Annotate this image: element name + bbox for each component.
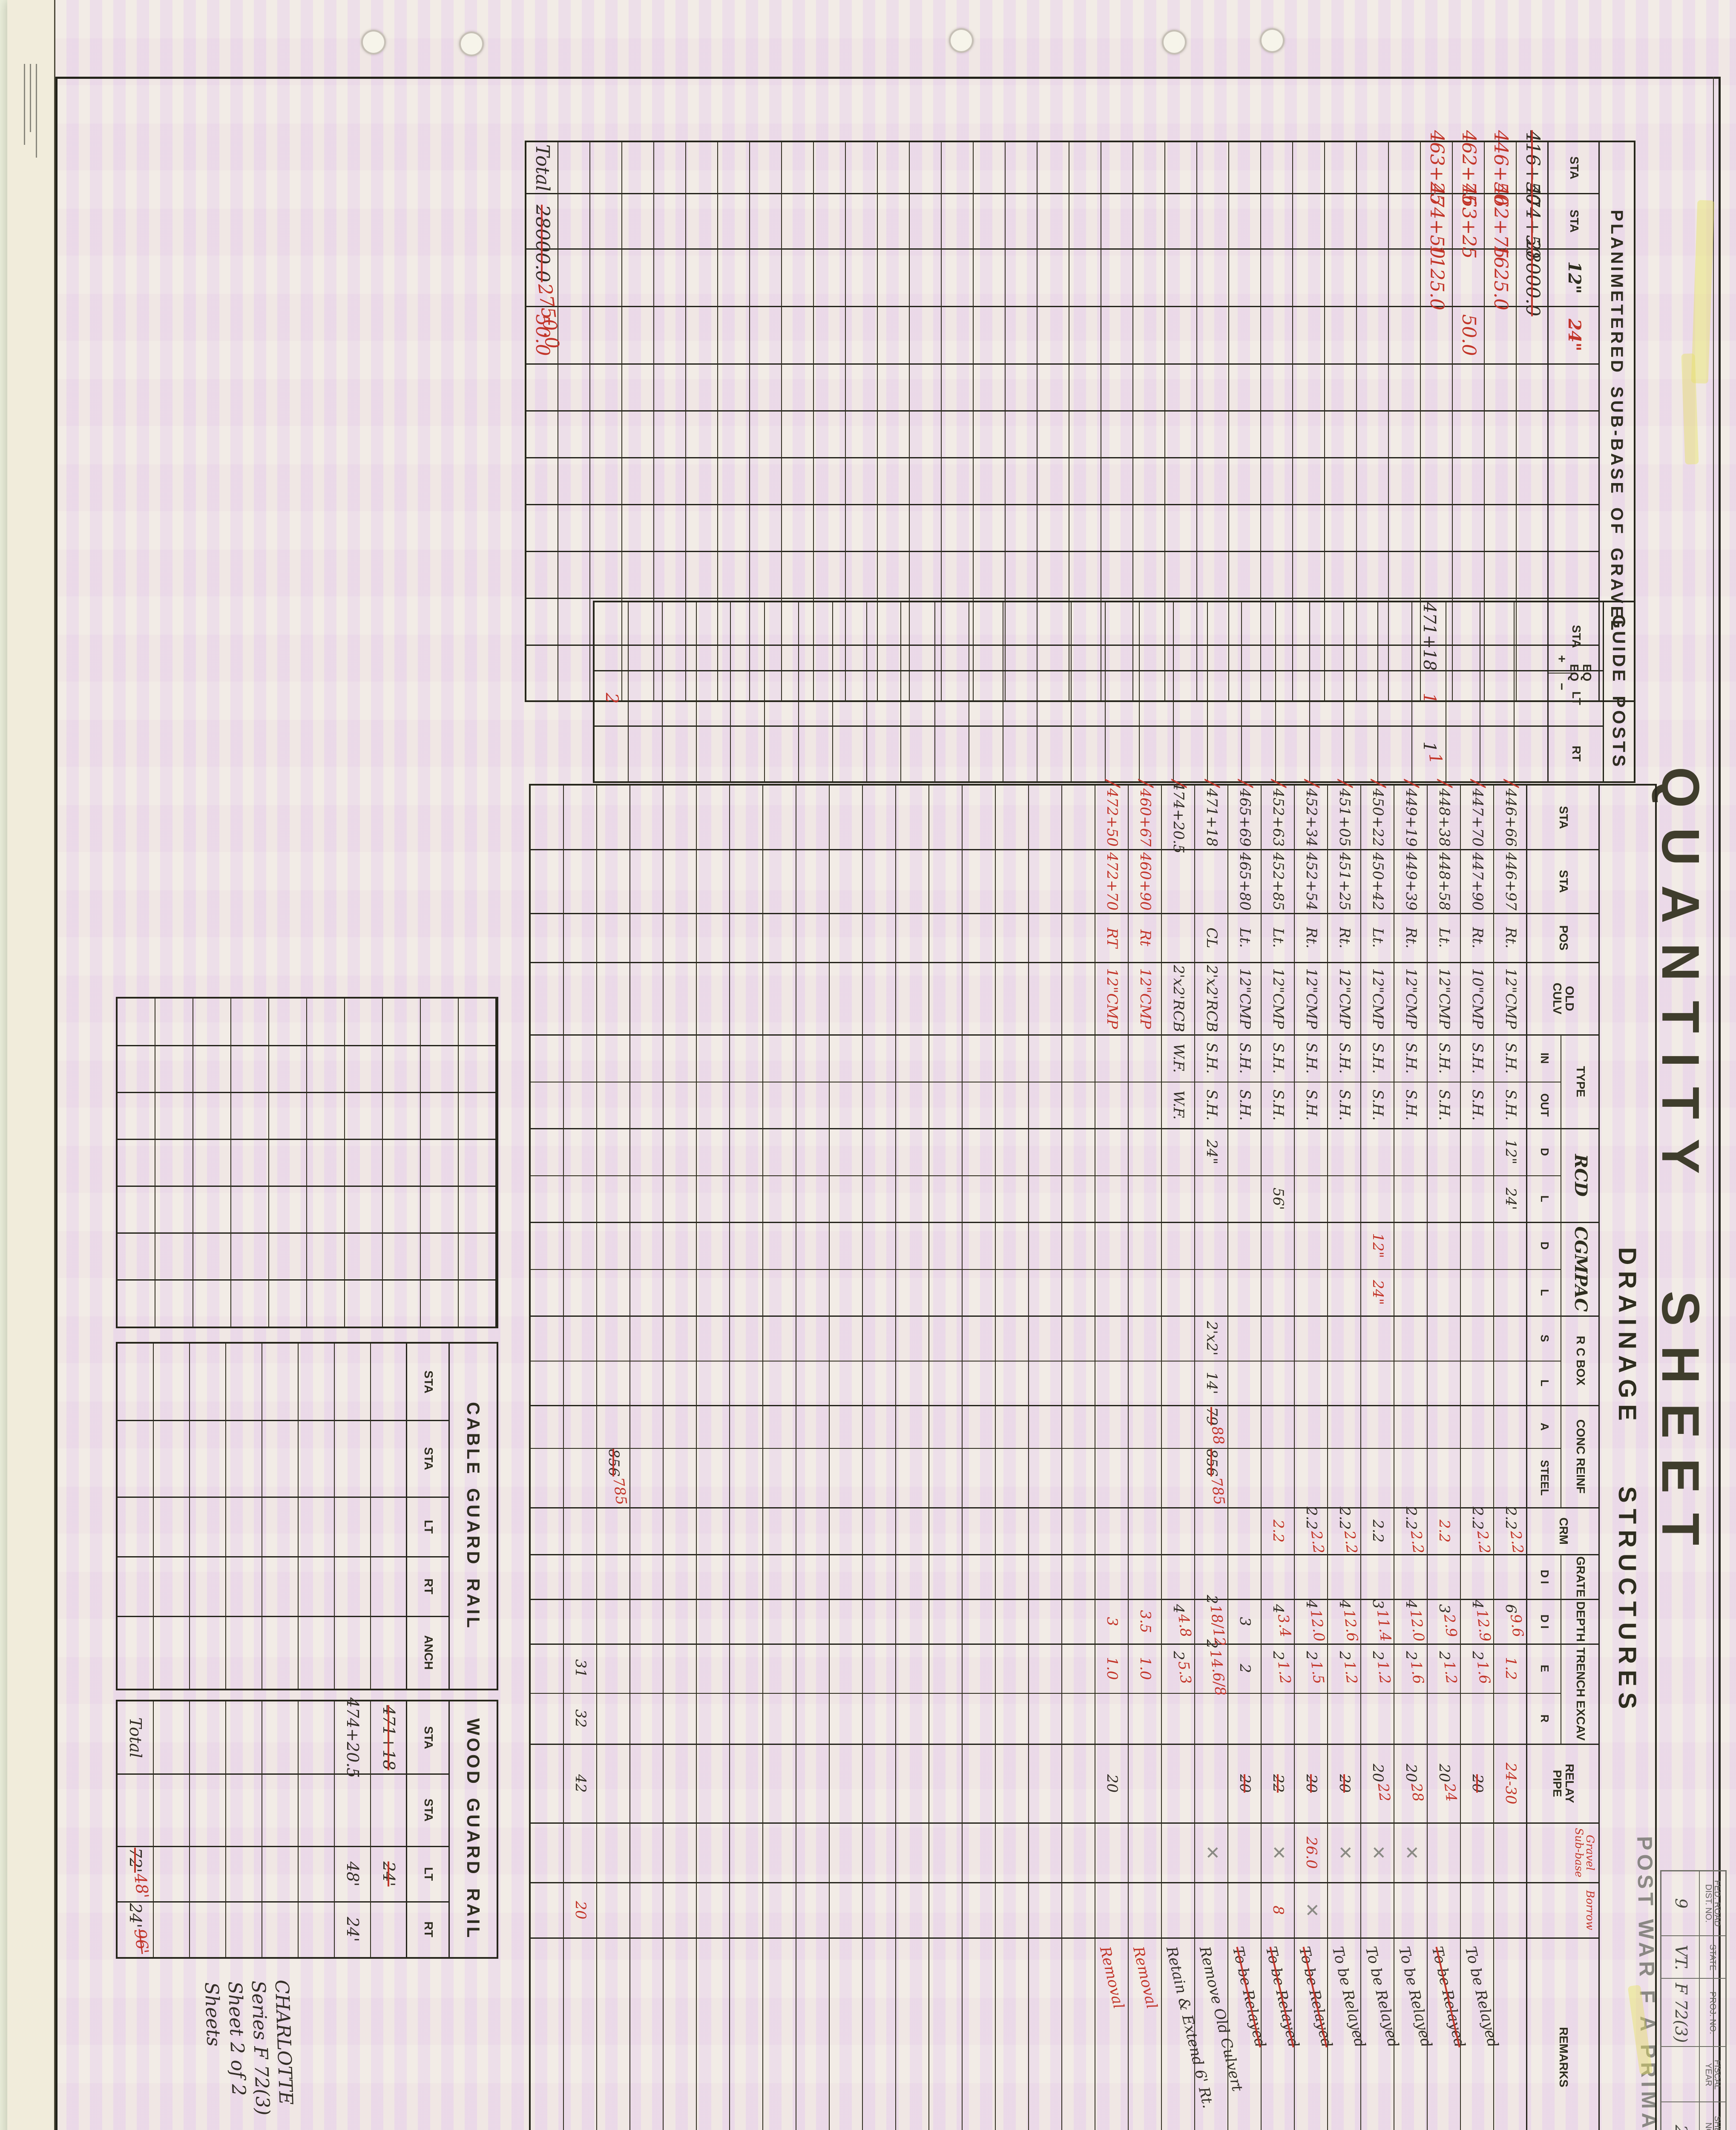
table-part xyxy=(118,1045,497,1046)
table-part xyxy=(696,602,697,781)
title-block-label: STATE xyxy=(1699,1935,1725,1979)
table-part xyxy=(118,1092,497,1093)
drainage-handwritten-cell: 460+90 xyxy=(1129,849,1162,913)
table-part xyxy=(995,786,996,2130)
drainage-handwritten-cell: 12"CMP xyxy=(1295,962,1328,1035)
drainage-handwritten-cell: S.H. xyxy=(1461,1035,1494,1082)
ink-black: 446+66 xyxy=(1502,789,1519,847)
sheet-border-inner-line xyxy=(1713,77,1714,2130)
ink-black: 12"CMP xyxy=(1369,968,1386,1029)
ink-red: 785 xyxy=(609,1477,630,1506)
drainage-handwritten-cell: 856785 xyxy=(597,1448,630,1508)
ink-red: 2.9 xyxy=(1440,1613,1460,1638)
table-part xyxy=(531,1269,1561,1270)
table-part xyxy=(382,999,383,1327)
drainage-handwritten-cell: 465+80 xyxy=(1228,849,1262,913)
ink-red: 26.0 xyxy=(1303,1836,1320,1869)
drainage-handwritten-cell: 448+38 xyxy=(1428,786,1461,849)
ink-black: 24" xyxy=(1203,1140,1220,1165)
ink-black: S.H. xyxy=(1203,1089,1220,1120)
binder-hole xyxy=(459,32,484,56)
ink-black: S.H. xyxy=(1303,1089,1320,1120)
table-part xyxy=(118,1279,497,1281)
table-part xyxy=(298,1701,299,1957)
title-block-label: PROJ. NO. xyxy=(1699,1978,1725,2047)
table-part xyxy=(495,999,497,1327)
drainage-handwritten-cell: 2.2 xyxy=(1262,1508,1295,1554)
drainage-handwritten-cell: 3.5 xyxy=(1129,1599,1162,1644)
ink-black: 465+69 xyxy=(1236,789,1253,847)
drainage-red-pencil-header: Gravel Sub-base xyxy=(1573,1823,1596,1882)
drainage-header: CGMPAC xyxy=(1561,1222,1600,1316)
table-part xyxy=(595,670,1604,671)
drainage-handwritten-cell: 474+20.5 xyxy=(1162,786,1195,849)
ink-black: Lt. xyxy=(1270,928,1287,948)
table-part xyxy=(895,786,896,2130)
table-part xyxy=(531,1937,1600,1939)
ink-black: 448+58 xyxy=(1436,852,1453,911)
drainage-handwritten-cell: 20 xyxy=(564,1882,597,1938)
ink-black: 2 xyxy=(1469,1651,1486,1661)
table-part xyxy=(595,725,1604,727)
ink-red: 50.0 xyxy=(532,314,553,356)
ink-red: 22 xyxy=(1374,1782,1394,1802)
ink-red: 12.6 xyxy=(1340,1609,1361,1643)
ink-black: S.H. xyxy=(1270,1089,1287,1120)
drainage-handwritten-cell: Lt. xyxy=(1228,913,1262,962)
wood_guard_rail-handwritten-cell: 48' xyxy=(335,1846,371,1902)
table-part xyxy=(189,1344,190,1689)
table-part xyxy=(1547,602,1549,781)
drainage-header: TYPE xyxy=(1561,1035,1600,1128)
ink-red: 4.8 xyxy=(1175,1613,1194,1638)
drainage-handwritten-cell: 20 xyxy=(1095,1744,1129,1823)
ink-black: S.H. xyxy=(1369,1089,1386,1120)
ink-black: Rt. xyxy=(1403,927,1420,948)
drainage-red-pencil-header: Borrow xyxy=(1584,1882,1595,1938)
table-part xyxy=(729,786,730,2130)
ink-black: 447+90 xyxy=(1469,852,1486,911)
ink-black: 471+18 xyxy=(1203,789,1220,847)
drainage-header: REMARKS xyxy=(1527,1938,1600,2130)
table-part xyxy=(862,786,863,2130)
ink-red: 1125.0 xyxy=(1426,245,1448,311)
drainage-handwritten-cell: 21.2 xyxy=(1328,1644,1361,1693)
ink-black: 449+19 xyxy=(1403,789,1420,847)
ink-red: Removal xyxy=(1096,1945,1127,2010)
drainage-handwritten-cell: 856785 xyxy=(1195,1448,1228,1508)
ink-black: 2 xyxy=(1203,1639,1220,1649)
pencil-x-mark: ✕ xyxy=(1268,1845,1289,1860)
ink-red: 12"CMP xyxy=(1104,968,1121,1029)
ink-black: 452+63 xyxy=(1270,789,1287,847)
drainage-handwritten-cell: Lt. xyxy=(1361,913,1394,962)
title-block-value xyxy=(1661,2046,1700,2102)
red-check-tick: ╱ xyxy=(1304,780,1319,787)
drainage-handwritten-cell: S.H. xyxy=(1428,1035,1461,1082)
drainage-subheader: D xyxy=(1527,1128,1561,1175)
table-part xyxy=(531,1361,1561,1361)
pencil-x-mark: ✕ xyxy=(1368,1845,1389,1860)
binder-hole xyxy=(1260,28,1285,53)
table-part xyxy=(796,786,796,2130)
table-part xyxy=(526,457,1600,458)
red-check-tick: ╱ xyxy=(1337,780,1352,787)
drainage-handwritten-cell: S.H. xyxy=(1494,1035,1527,1082)
drainage-handwritten-cell: 42 xyxy=(564,1744,597,1823)
ink-red: 50.0 xyxy=(1458,314,1480,356)
drainage-handwritten-cell: 12"CMP xyxy=(1428,962,1461,1035)
drainage-handwritten-cell: Rt. xyxy=(1295,913,1328,962)
guide_posts-header: RT xyxy=(1549,726,1604,781)
drainage-handwritten-cell: 472+50 xyxy=(1095,786,1129,849)
ink-black: 20 xyxy=(1403,1764,1420,1782)
red-check-tick: ╱ xyxy=(1503,780,1518,787)
table-part xyxy=(832,602,833,781)
title-block-label: SHEET NO. xyxy=(1699,2101,1725,2130)
drainage-handwritten-cell: 447+90 xyxy=(1461,849,1494,913)
ink-red: 28 xyxy=(1408,1782,1427,1802)
table-part xyxy=(526,504,1600,505)
wood_guard_rail-handwritten-cell: 471+18 xyxy=(371,1701,407,1774)
guide_posts-handwritten-cell: 2 xyxy=(595,671,629,726)
cable_guard_rail-header: STA xyxy=(407,1420,450,1497)
drainage-handwritten-cell: S.H. xyxy=(1295,1082,1328,1128)
drainage-header: GRATE xyxy=(1561,1554,1600,1599)
drainage-subheader: D I xyxy=(1527,1554,1561,1599)
ink-red: 460+67 xyxy=(1137,789,1154,847)
ink-red: 24 xyxy=(1441,1782,1460,1802)
drainage-handwritten-cell: 2.22.2 xyxy=(1461,1508,1494,1554)
drainage-subheader: STEEL xyxy=(1527,1448,1561,1508)
ink-black: 22 xyxy=(1270,1774,1287,1793)
table-part xyxy=(1028,786,1029,2130)
ink-black: 2 xyxy=(1270,1651,1287,1661)
drainage-handwritten-cell: W.F. xyxy=(1162,1035,1195,1082)
ink-black: 2.2 xyxy=(1336,1507,1353,1530)
ink-red: 2.2 xyxy=(1341,1530,1360,1555)
table-part xyxy=(1275,602,1276,781)
table-part xyxy=(1309,602,1310,781)
ink-black: 32 xyxy=(572,1709,589,1727)
table-part xyxy=(662,602,663,781)
ink-black: 24' xyxy=(1502,1188,1519,1210)
ink-black: S.H. xyxy=(1469,1089,1486,1120)
title-block-label: FISCAL YEAR xyxy=(1699,2046,1725,2102)
ink-red: 14.6/8 xyxy=(1207,1649,1229,1697)
ink-black: Lt. xyxy=(1436,928,1453,948)
ink-black: 6 xyxy=(1502,1604,1519,1614)
table-part xyxy=(531,1882,1600,1883)
table-part xyxy=(526,551,1600,552)
table-part xyxy=(1561,1554,1561,1599)
ink-black: 2'x2'RCB xyxy=(1170,965,1187,1032)
drainage-handwritten-cell: 22 xyxy=(1262,1744,1295,1823)
drainage-handwritten-cell: 218/12 xyxy=(1195,1599,1228,1644)
cable_guard_rail-header: RT xyxy=(407,1557,450,1616)
ink-black: 2 xyxy=(1236,1664,1253,1673)
project-note: CHARLOTTE Series F 72(3) Sheet 2 of 2 Sh… xyxy=(200,1979,300,2130)
drainage-handwritten-cell: 12"CMP xyxy=(1228,962,1262,1035)
ink-black: 4 xyxy=(1469,1600,1486,1609)
ink-black: 451+05 xyxy=(1336,789,1353,847)
drainage-subheader: IN xyxy=(1527,1035,1561,1082)
table-part xyxy=(531,1222,1600,1223)
ink-red: 11.4 xyxy=(1374,1609,1394,1643)
drainage-handwritten-cell: 3 xyxy=(1228,1599,1262,1644)
drainage-handwritten-cell: 2.22.2 xyxy=(1328,1508,1361,1554)
drainage-header: CRM xyxy=(1527,1508,1600,1554)
drainage-subheader: D xyxy=(1527,1222,1561,1269)
red-check-tick: ╱ xyxy=(1271,780,1286,787)
table-part xyxy=(153,1344,154,1689)
drainage-handwritten-cell: S.H. xyxy=(1428,1082,1461,1128)
table-part xyxy=(193,999,193,1327)
guide_posts-header: LT xyxy=(1549,671,1604,726)
drainage-handwritten-cell: 12"CMP xyxy=(1095,962,1129,1035)
ink-red: 5.3 xyxy=(1175,1660,1194,1685)
drainage-handwritten-cell: 472+70 xyxy=(1095,849,1129,913)
table-part xyxy=(730,602,731,781)
drainage-handwritten-cell: 21.2 xyxy=(1262,1644,1295,1693)
ink-red: 1 xyxy=(1420,693,1439,703)
ink-black: W.F. xyxy=(1170,1091,1187,1120)
drainage-handwritten-cell: 214.6/8 xyxy=(1195,1644,1228,1693)
planimetered-handwritten-cell: Total xyxy=(526,142,558,193)
ink-red: 1.5 xyxy=(1308,1660,1327,1685)
title-block: FED. ROAD DIST. NO.9STATEVT.PROJ. NO.F 7… xyxy=(1660,1870,1727,2130)
planimetered-header: STA xyxy=(1549,193,1600,249)
table-part xyxy=(420,999,421,1327)
table-part xyxy=(962,786,963,2130)
drainage-handwritten-cell: S.H. xyxy=(1262,1082,1295,1128)
ink-black: 446+97 xyxy=(1502,852,1519,911)
drainage-handwritten-cell: 12"CMP xyxy=(1262,962,1295,1035)
drainage-header: CONC REINF xyxy=(1561,1405,1600,1508)
table-part xyxy=(118,1497,450,1498)
planimetered-handwritten-cell: 28000.02750.0 xyxy=(526,249,558,306)
drainage-handwritten-cell: 21.6 xyxy=(1461,1644,1494,1693)
drainage-handwritten-cell: 21.2 xyxy=(1428,1644,1461,1693)
title-block-value: 2 xyxy=(1661,2101,1700,2130)
ink-black: S.H. xyxy=(1502,1042,1519,1074)
drainage-handwritten-cell: 2.22.2 xyxy=(1394,1508,1428,1554)
drainage-handwritten-cell: 1.2 xyxy=(1494,1644,1527,1693)
ink-black: 3 xyxy=(1369,1600,1386,1609)
ink-black: S.H. xyxy=(1436,1089,1453,1120)
drainage-handwritten-cell: 2024 xyxy=(1428,1744,1461,1823)
cable_guard_rail-caption: CABLE GUARD RAIL xyxy=(450,1344,497,1689)
ink-black: 24' xyxy=(344,1917,362,1942)
ink-black: CL xyxy=(1203,927,1220,948)
ink-black: 20 xyxy=(1369,1764,1386,1782)
drainage-handwritten-cell: S.H. xyxy=(1494,1082,1527,1128)
drainage-handwritten-cell: S.H. xyxy=(1195,1035,1228,1082)
drainage-handwritten-cell: 452+34 xyxy=(1295,786,1328,849)
binding-margin-strip xyxy=(7,0,55,2130)
ink-black: 56' xyxy=(1270,1188,1287,1210)
drainage-handwritten-cell: CL xyxy=(1195,913,1228,962)
ink-red: 1.0 xyxy=(1104,1657,1121,1680)
binder-hole xyxy=(1162,30,1187,55)
drainage-handwritten-cell: 446+97 xyxy=(1494,849,1527,913)
ink-black: S.H. xyxy=(1369,1042,1386,1074)
table-part xyxy=(531,1448,1561,1449)
drainage-handwritten-cell: S.H. xyxy=(1328,1082,1361,1128)
table-part xyxy=(1139,602,1140,781)
pencil-x-mark: ✕ xyxy=(1202,1845,1223,1860)
drainage-handwritten-cell: RT xyxy=(1095,913,1129,962)
ink-black: Rt. xyxy=(1469,927,1486,948)
table-part xyxy=(934,602,935,781)
drainage-handwritten-cell: 32 xyxy=(564,1693,597,1744)
ink-black: 4 xyxy=(1336,1600,1353,1609)
table-part xyxy=(969,602,969,781)
drainage-handwritten-cell: W.F. xyxy=(1162,1082,1195,1128)
planimetered-handwritten-cell: 1125.0 xyxy=(1421,249,1453,306)
ink-red: Rt xyxy=(1137,930,1154,946)
ink-red: 2.2 xyxy=(1407,1530,1427,1555)
drainage-handwritten-cell: 471+18 xyxy=(1195,786,1228,849)
ink-red: 1.2 xyxy=(1502,1657,1519,1680)
ink-black: 2'x2'RCB xyxy=(1203,965,1220,1032)
ink-black: Rt. xyxy=(1336,927,1353,948)
ink-black: 2 xyxy=(1336,1651,1353,1661)
drainage-subheader: E xyxy=(1527,1644,1561,1693)
ink-black: 452+34 xyxy=(1303,789,1320,847)
ink-black: Rt. xyxy=(1502,927,1519,948)
table-part xyxy=(829,786,830,2130)
red-check-tick: ╱ xyxy=(1204,780,1219,787)
drainage-handwritten-cell: 24" xyxy=(1195,1128,1228,1175)
drainage-header: TRENCH EXCAV xyxy=(1561,1644,1600,1744)
ink-black: 2'x2' xyxy=(1203,1321,1220,1356)
ink-red: 1.6 xyxy=(1474,1660,1493,1685)
ink-red: 12.0 xyxy=(1307,1609,1328,1643)
planimetered-handwritten-cell: 50.0 xyxy=(1453,306,1485,364)
margin-microprint xyxy=(30,64,31,132)
drainage-handwritten-cell: 26.0 xyxy=(1295,1823,1328,1882)
drainage-handwritten-cell: 2.22.2 xyxy=(1494,1508,1527,1554)
table-part xyxy=(189,1701,190,1957)
ink-red: 1.2 xyxy=(1274,1660,1294,1685)
ink-red: 2 xyxy=(602,693,621,703)
red-check-tick: ╱ xyxy=(1371,780,1385,787)
wood_guard_rail-header: RT xyxy=(407,1902,450,1957)
table-part xyxy=(558,142,558,700)
drainage-handwritten-cell: 12"CMP xyxy=(1494,962,1527,1035)
drainage-handwritten-cell: 465+69 xyxy=(1228,786,1262,849)
drainage-header: OLD CULV xyxy=(1527,962,1600,1035)
table-part xyxy=(1071,602,1072,781)
table-part xyxy=(1173,602,1174,781)
table-part xyxy=(118,1232,497,1234)
drainage-handwritten-cell: 449+19 xyxy=(1394,786,1428,849)
table-part xyxy=(406,1344,407,1689)
ink-black: 12"CMP xyxy=(1303,968,1320,1029)
table-part xyxy=(1037,602,1038,781)
table-part xyxy=(118,1139,497,1140)
drainage-handwritten-cell: Rt. xyxy=(1461,913,1494,962)
table-part xyxy=(1003,602,1003,781)
drainage-handwritten-cell: 2'x2'RCB xyxy=(1162,962,1195,1035)
planimetered-handwritten-cell: 463+25 xyxy=(1453,193,1485,249)
ink-black: S.H. xyxy=(1236,1042,1253,1074)
table-cable_guard_rail: CABLE GUARD RAILSTASTALTRTANCH xyxy=(116,1342,498,1690)
ink-black: 474+20.5 xyxy=(1170,781,1187,853)
rotated-sheet-wrapper: QUANTITY SHEET FED. ROAD DIST. NO.9STATE… xyxy=(9,0,1736,2130)
ink-black: 12"CMP xyxy=(1502,968,1519,1029)
drainage-handwritten-cell: 12"CMP xyxy=(1361,962,1394,1035)
drainage-handwritten-cell: 311.4 xyxy=(1361,1599,1394,1644)
ink-black: S.H. xyxy=(1469,1042,1486,1074)
red-check-tick: ╱ xyxy=(1404,780,1419,787)
ink-red: 12" xyxy=(1369,1233,1386,1258)
drainage-subheader: L xyxy=(1527,1361,1561,1405)
ink-black: 28000.0 xyxy=(532,205,553,282)
drainage-handwritten-cell: 2.22.2 xyxy=(1295,1508,1328,1554)
table-part xyxy=(1561,1405,1561,1508)
ink-black: 79 xyxy=(1203,1407,1220,1425)
ink-black: 474+20.5 xyxy=(344,1698,362,1778)
ink-red: 8 xyxy=(1270,1905,1287,1915)
drawing-sheet: QUANTITY SHEET FED. ROAD DIST. NO.9STATE… xyxy=(9,0,1736,2130)
drainage-handwritten-cell: 412.0 xyxy=(1394,1599,1428,1644)
ink-black: 2 xyxy=(1170,1651,1187,1661)
ink-black: 2 xyxy=(1403,1651,1420,1661)
table-part xyxy=(762,786,763,2130)
ink-black: 2.2 xyxy=(1502,1507,1519,1530)
ink-red: 20 xyxy=(572,1901,589,1919)
table-part xyxy=(1561,1644,1561,1744)
drainage-handwritten-cell: S.H. xyxy=(1361,1082,1394,1128)
drainage-handwritten-cell: S.H. xyxy=(1461,1082,1494,1128)
ink-red: 24" xyxy=(1369,1280,1386,1305)
table-part xyxy=(118,1420,450,1421)
drainage-header: RELAY PIPE xyxy=(1527,1744,1600,1823)
ink-black: S.H. xyxy=(1236,1089,1253,1120)
drainage-handwritten-cell: 2'x2'RCB xyxy=(1195,962,1228,1035)
title-block-value: VT. xyxy=(1661,1935,1700,1979)
ink-black: 20 xyxy=(1336,1774,1353,1793)
scanned-quantity-sheet-page: QUANTITY SHEET FED. ROAD DIST. NO.9STATE… xyxy=(0,0,1736,2130)
drainage-handwritten-cell: 450+42 xyxy=(1361,849,1394,913)
drainage-handwritten-cell: 2.2 xyxy=(1361,1508,1394,1554)
planimetered-handwritten-cell: 462+75 xyxy=(1485,193,1517,249)
ink-red: 1.2 xyxy=(1341,1660,1360,1685)
table-wood_guard_rail: WOOD GUARD RAILSTASTALTRT471+1824'474+20… xyxy=(116,1700,498,1959)
table-part xyxy=(262,1344,262,1689)
drainage-header: POS xyxy=(1527,913,1600,962)
red-check-tick: ╱ xyxy=(1138,780,1153,787)
wood_guard_rail-header: STA xyxy=(407,1701,450,1774)
drainage-handwritten-cell: Rt. xyxy=(1494,913,1527,962)
ink-black: S.H. xyxy=(1303,1042,1320,1074)
ink-black: 856 xyxy=(1203,1449,1220,1477)
ink-red: 472+70 xyxy=(1104,852,1121,911)
red-check-tick: ╱ xyxy=(1105,780,1120,787)
ink-red: 3.4 xyxy=(1274,1613,1294,1638)
ink-red: 9.6 xyxy=(1507,1613,1526,1638)
planimetered-handwritten-cell: 28000.0 xyxy=(1517,249,1549,306)
drainage-handwritten-cell: 10"CMP xyxy=(1461,962,1494,1035)
drainage-handwritten-cell: 2 xyxy=(1228,1644,1262,1693)
drainage-handwritten-cell: S.H. xyxy=(1195,1082,1228,1128)
red-check-tick: ╱ xyxy=(1437,780,1452,787)
drainage-handwritten-cell: 12" xyxy=(1494,1128,1527,1175)
drainage-handwritten-cell: 452+54 xyxy=(1295,849,1328,913)
table-drainage: DRAINAGE STRUCTURESSTASTAPOSOLD CULVTYPE… xyxy=(529,784,1657,2130)
